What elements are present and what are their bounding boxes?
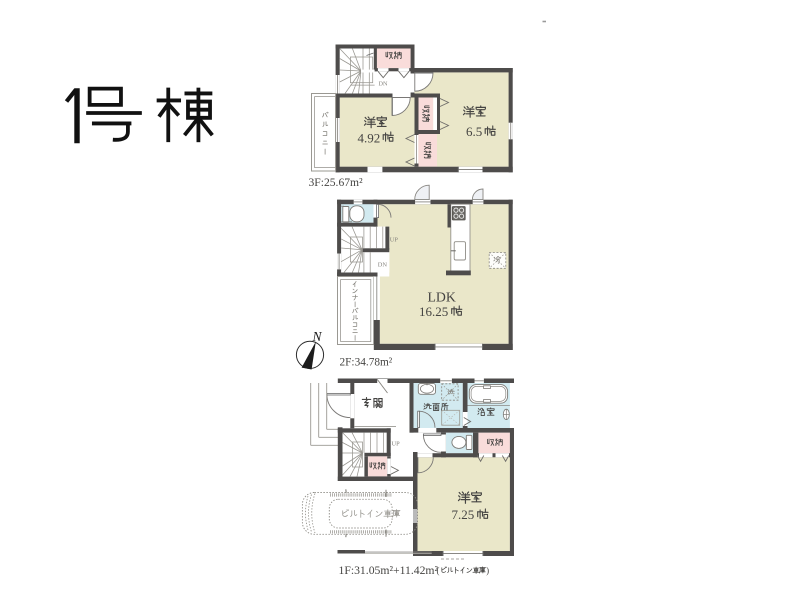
svg-text:UP: UP — [392, 441, 401, 448]
svg-text:DN: DN — [379, 81, 388, 88]
svg-text:DN: DN — [378, 261, 388, 268]
svg-text:(: ( — [437, 566, 440, 576]
svg-text:): ) — [486, 566, 489, 576]
svg-text:1F:31.05m²+11.42m²: 1F:31.05m²+11.42m² — [339, 564, 439, 577]
svg-text:3F:25.67m²: 3F:25.67m² — [309, 176, 364, 189]
svg-text:4.92: 4.92 — [358, 131, 381, 146]
svg-text:2F:34.78m²: 2F:34.78m² — [340, 357, 393, 369]
svg-text:7.25: 7.25 — [452, 507, 475, 522]
svg-text:6.5: 6.5 — [466, 124, 482, 139]
svg-text:N: N — [312, 329, 323, 344]
svg-text:UP: UP — [390, 236, 399, 243]
svg-text:LDK: LDK — [428, 290, 456, 305]
svg-text:16.25: 16.25 — [419, 304, 448, 319]
